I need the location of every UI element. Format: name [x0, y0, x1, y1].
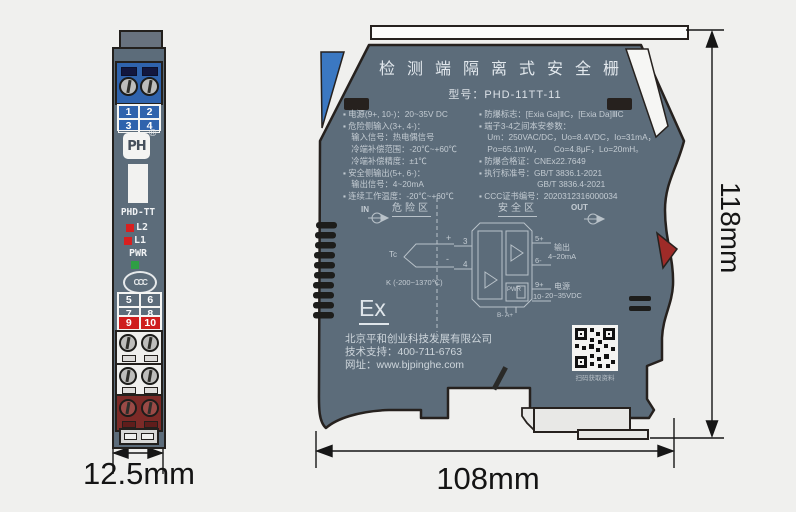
terminal-number: 6 — [140, 293, 162, 307]
tc-plus: + — [446, 233, 451, 243]
front-terminal-numbers-top: 1 2 3 4 — [117, 104, 161, 131]
slot-right-1 — [629, 296, 651, 301]
spec-line: ▪ 防爆合格证：CNEx22.7649 — [479, 156, 656, 168]
safe-zone-label: 安全区 — [498, 199, 537, 217]
spec-line: 输出信号：4~20mA — [343, 179, 457, 191]
spec-line: ▪ 安全侧输出(5+, 6-)： — [343, 168, 457, 180]
din-foot — [534, 408, 630, 432]
led-l1-label: L1 — [134, 235, 146, 246]
terminal-screw[interactable] — [141, 334, 159, 352]
side-title: 检测端隔离式安全栅 — [335, 55, 675, 79]
isolator-dimension-drawing: 1 2 3 4 PH ® PHD-TT L2 L1 PWR CCC 5 6 7 … — [0, 0, 796, 512]
terminal-screw[interactable] — [119, 367, 137, 385]
tc-range-label: K (-200~1370℃) — [386, 278, 443, 287]
front-terminal-numbers-mid: 5 6 7 8 — [117, 292, 162, 317]
spec-line: ▪ 端子3-4之间本安参数： — [479, 121, 656, 133]
output-value: 4~20mA — [548, 252, 576, 261]
front-white-window — [128, 164, 148, 203]
led-pwr-label: PWR — [112, 248, 164, 259]
out-label: OUT — [571, 203, 588, 212]
front-terminal-block-top — [115, 61, 163, 105]
website: 网址：www.bjpinghe.com — [345, 357, 464, 372]
led-l2-indicator — [126, 224, 134, 232]
spec-line: ▪ 危险侧输入(3+, 4-)： — [343, 121, 457, 133]
wire-slot — [144, 355, 158, 362]
terminal-number: 9 — [118, 316, 140, 330]
terminal-3-label: 3 — [463, 237, 467, 246]
side-top-strip — [371, 26, 688, 39]
terminal-number: 5 — [118, 293, 140, 307]
terminal-screw[interactable] — [141, 367, 159, 385]
slot-right-2 — [629, 306, 651, 311]
led-pwr-indicator — [131, 261, 139, 269]
spec-line: ▪ 执行标准号：GB/T 3836.1-2021 — [479, 168, 656, 180]
ccc-certification-mark: CCC — [123, 271, 157, 294]
ex-mark: Ex — [359, 295, 389, 325]
wire-slot — [142, 67, 158, 76]
tc-minus: - — [446, 254, 449, 264]
terminal-6-label: 6- — [535, 256, 542, 265]
terminal-number: 1 — [118, 105, 139, 119]
led-l1-indicator — [124, 237, 132, 245]
terminal-screw[interactable] — [119, 334, 137, 352]
bottom-terminals-label: B- A+ — [497, 312, 513, 319]
spec-line: ▪ 防爆标志：[Exia Ga]ⅡC，[Exia Da]ⅢC — [479, 109, 656, 121]
led-l2-label: L2 — [136, 222, 148, 233]
wire-slot — [124, 433, 137, 440]
front-terminal-numbers-red: 9 10 — [117, 315, 162, 330]
wire-slot — [122, 387, 136, 394]
qr-caption: 扫码获取资料 — [571, 372, 619, 382]
wire-slot — [144, 421, 158, 428]
registered-mark: ® — [149, 128, 156, 139]
wire-slot — [121, 67, 137, 76]
ccc-mark-text: CCC — [134, 278, 147, 287]
tc-label: Tc — [389, 250, 397, 259]
terminal-screw[interactable] — [119, 399, 137, 417]
spec-line: Po=65.1mW， Co=4.8μF，Lo=20mH。 — [479, 144, 656, 156]
spec-line: ▪ 电源(9+, 10-)：20~35V DC — [343, 109, 457, 121]
terminal-9-label: 9+ — [535, 280, 544, 289]
spec-line: 冷端补偿精度：±1℃ — [343, 156, 457, 168]
spec-list-right: ▪ 防爆标志：[Exia Ga]ⅡC，[Exia Da]ⅢC ▪ 端子3-4之间… — [479, 109, 656, 203]
brand-logo-text: PH — [127, 139, 145, 154]
brand-logo: PH — [123, 133, 150, 159]
spec-list-left: ▪ 电源(9+, 10-)：20~35V DC ▪ 危险侧输入(3+, 4-)：… — [343, 109, 457, 203]
dimension-height: 118mm — [714, 182, 746, 273]
spec-line: 冷端补偿范围：-20℃~+60℃ — [343, 144, 457, 156]
wire-slot — [144, 387, 158, 394]
dimension-front-width: 12.5mm — [72, 456, 206, 492]
terminal-screw[interactable] — [119, 77, 138, 96]
front-bottom-base — [119, 428, 159, 445]
side-model-line: 型号：PHD-11TT-11 — [335, 86, 675, 102]
din-foot-left — [522, 408, 534, 430]
terminal-number: 10 — [140, 316, 162, 330]
terminal-10-label: 10- — [533, 292, 544, 301]
spec-line: GB/T 3836.4-2021 — [479, 179, 656, 191]
in-label: IN — [361, 205, 369, 214]
terminal-number: 3 — [118, 119, 139, 133]
terminal-screw[interactable] — [140, 77, 159, 96]
power-value: 20~35VDC — [545, 291, 582, 300]
front-terminal-block-red — [115, 394, 163, 432]
front-model-label: PHD-TT — [112, 207, 164, 218]
terminal-screw[interactable] — [141, 399, 159, 417]
terminal-number: 2 — [139, 105, 160, 119]
front-terminal-block-mid1 — [115, 330, 163, 365]
terminal-4-label: 4 — [463, 260, 467, 269]
pwr-box-label: PWR — [507, 287, 521, 293]
terminal-5-label: 5+ — [535, 234, 544, 243]
wire-slot — [122, 355, 136, 362]
qr-code — [572, 325, 618, 371]
wire-slot — [141, 433, 154, 440]
hazard-zone-label: 危险区 — [392, 199, 431, 217]
din-foot-base — [578, 430, 648, 439]
spec-line: Um：250VAC/DC，Uo=8.4VDC，Io=31mA， — [479, 132, 656, 144]
spec-line: 输入信号：热电偶信号 — [343, 132, 457, 144]
wire-slot — [122, 421, 136, 428]
dimension-side-width: 108mm — [398, 461, 578, 497]
front-terminal-block-mid2 — [115, 363, 163, 396]
